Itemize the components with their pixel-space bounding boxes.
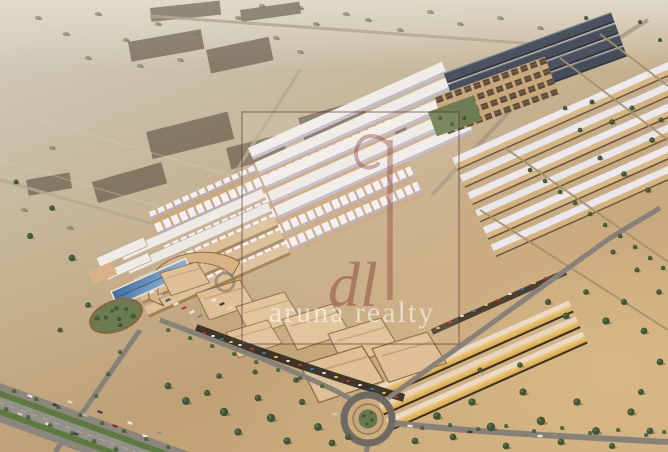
aerial-render-photo: dl aruna realty <box>0 0 668 452</box>
shop-sign <box>460 315 463 317</box>
shop-sign <box>508 293 511 295</box>
shop-sign <box>472 310 475 312</box>
watermark-text: aruna realty <box>269 296 435 329</box>
shop-sign <box>370 388 373 390</box>
shop-sign <box>238 344 241 346</box>
shop-sign <box>544 277 547 279</box>
shop-sign <box>250 348 253 350</box>
shop-sign <box>274 356 277 358</box>
shop-sign <box>346 380 349 382</box>
shop-sign <box>220 338 223 340</box>
car <box>467 431 472 434</box>
shop-sign <box>358 384 361 386</box>
shop-sign <box>322 372 325 374</box>
shop-sign <box>520 288 523 290</box>
shop-sign <box>484 304 487 306</box>
shop-sign <box>394 396 397 398</box>
shop-sign <box>262 352 265 354</box>
car <box>537 435 542 438</box>
shop-sign <box>310 368 313 370</box>
shop-sign <box>202 332 205 334</box>
shop-sign <box>298 364 301 366</box>
shop-sign <box>229 341 232 343</box>
shop-sign <box>496 299 499 301</box>
shop-sign <box>211 335 214 337</box>
shop-sign <box>382 392 385 394</box>
watermark: dl aruna realty <box>242 112 459 344</box>
shop-sign <box>286 360 289 362</box>
shop-sign <box>532 282 535 284</box>
car <box>407 425 412 428</box>
shop-sign <box>334 376 337 378</box>
